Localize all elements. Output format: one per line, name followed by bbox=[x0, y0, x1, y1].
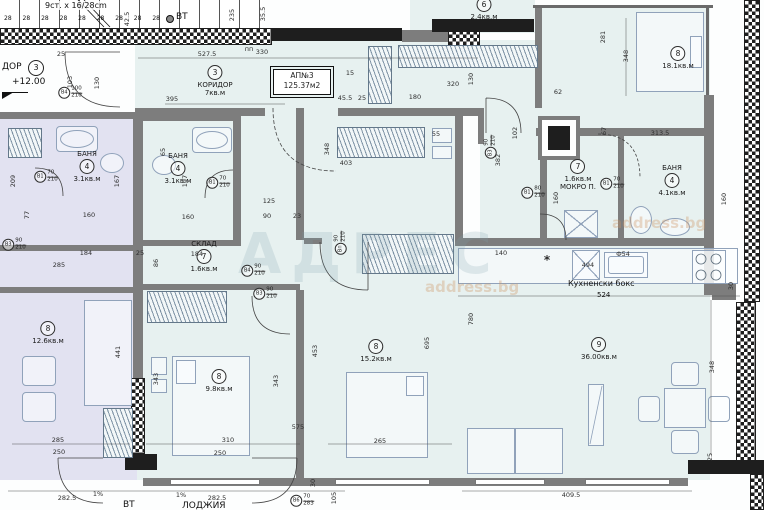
room-label: БАНЯ43.1кв.м bbox=[74, 150, 101, 183]
door-marker-size: 80210 bbox=[534, 187, 545, 200]
dimension-label: 77 bbox=[24, 211, 31, 219]
dimension-label: 130 bbox=[468, 73, 475, 85]
dimension-label: 348 bbox=[324, 143, 331, 155]
door-marker-code: В3 bbox=[485, 147, 497, 159]
dimension-label: 282.5 bbox=[208, 495, 227, 502]
dimension-label: 25 bbox=[57, 51, 65, 58]
room-label: 3КОРИДОР7кв.м bbox=[197, 64, 232, 97]
dimension-label: 527.5 bbox=[198, 51, 217, 58]
door-marker-size: 100210 bbox=[71, 87, 82, 100]
door-marker-code: В1 bbox=[206, 177, 218, 189]
landing-number: 3 bbox=[28, 60, 44, 76]
dimension-label: 281 bbox=[600, 31, 607, 43]
door-marker: В170210 bbox=[600, 178, 624, 191]
room-area: 12.6кв.м bbox=[32, 337, 63, 345]
room-area: 3.1кв.м bbox=[74, 175, 101, 183]
dimension-label: 494 bbox=[582, 262, 594, 269]
room-area: 9.8кв.м bbox=[206, 385, 233, 393]
dimension-label: 160 bbox=[182, 214, 194, 221]
dimension-label: 282.5 bbox=[58, 495, 77, 502]
room-number: 6 bbox=[477, 0, 492, 12]
door-marker-size: 90210 bbox=[335, 231, 348, 242]
dimension-label: 102 bbox=[512, 127, 519, 139]
landing-label: ДОР bbox=[2, 62, 22, 72]
door-marker: В4100210 bbox=[58, 87, 82, 100]
room-label: 936.00кв.м bbox=[581, 336, 617, 361]
door-marker-code: В1 bbox=[600, 178, 612, 190]
dimension-label: 348 bbox=[623, 50, 630, 62]
stair-note: 9ст. x 16/28cm bbox=[45, 1, 107, 10]
room-area: 1.6кв.м bbox=[191, 265, 218, 273]
door-marker-code: В3 bbox=[253, 288, 265, 300]
dimension-label: 184 bbox=[80, 250, 92, 257]
room-area: 7кв.м bbox=[197, 89, 232, 97]
room-number: 4 bbox=[665, 173, 680, 188]
room-area: 15.2кв.м bbox=[360, 355, 391, 363]
dimension-label: 780 bbox=[468, 313, 475, 325]
door-marker: В490210 bbox=[241, 265, 265, 278]
room-label: 89.8кв.м bbox=[206, 368, 233, 393]
dimension-label: 310 bbox=[222, 437, 234, 444]
stair-tread-numbers: 28 28 28 28 28 28 28 28 28 bbox=[4, 15, 239, 22]
watermark-url-2: address.bg bbox=[612, 214, 706, 232]
room-area: 1.6кв.м bbox=[560, 175, 596, 183]
door-marker-code: В4 bbox=[241, 265, 253, 277]
dimension-label: 197 bbox=[182, 175, 189, 187]
dimension-label: 160 bbox=[553, 192, 560, 204]
door-marker-code: В1 bbox=[521, 187, 533, 199]
door-marker-code: В4 bbox=[58, 87, 70, 99]
dimension-label: 65 bbox=[160, 148, 167, 156]
dimension-label: 45.5 bbox=[338, 95, 352, 102]
dimension-label: 25 bbox=[707, 453, 714, 461]
dimension-label: 313.5 bbox=[651, 130, 670, 137]
door-marker: В670283 bbox=[290, 495, 314, 508]
room-name: МОКРО П. bbox=[560, 183, 596, 191]
door-marker-size: 70210 bbox=[613, 178, 624, 191]
door-marker-size: 90210 bbox=[485, 135, 498, 146]
dimension-label: 30 bbox=[728, 282, 735, 290]
dimension-label: 105 bbox=[331, 492, 338, 504]
room-number: 9 bbox=[592, 337, 607, 352]
room-label: 62.4кв.м bbox=[471, 0, 498, 21]
door-marker-size: 90210 bbox=[254, 265, 265, 278]
apartment-label-box: АП№3 125.37м2 bbox=[273, 69, 331, 95]
apartment-area: 125.37м2 bbox=[274, 81, 330, 91]
dimension-label: 23 bbox=[293, 213, 301, 220]
room-number: 8 bbox=[368, 339, 383, 354]
room-number: 3 bbox=[207, 65, 222, 80]
dimension-label: 250 bbox=[53, 449, 65, 456]
dimension-label: 184 bbox=[191, 251, 203, 258]
dimension-label: 25 bbox=[136, 250, 144, 257]
door-marker: В390210 bbox=[253, 288, 277, 301]
dimension-label: 86 bbox=[153, 259, 160, 267]
dimension-label: 320 bbox=[447, 81, 459, 88]
dimension-label: 403 bbox=[340, 160, 352, 167]
room-name: КОРИДОР bbox=[197, 81, 232, 89]
dimension-label: 160 bbox=[721, 193, 728, 205]
watermark-url-1: address.bg bbox=[425, 278, 519, 296]
dimension-label: 343 bbox=[273, 375, 280, 387]
dimension-label: 25 bbox=[358, 95, 366, 102]
dimension-label: 330 bbox=[256, 49, 268, 56]
room-label: 812.6кв.м bbox=[32, 320, 63, 345]
dimension-label: 348 bbox=[709, 361, 716, 373]
room-number: 4 bbox=[80, 159, 95, 174]
dimension-label: 343 bbox=[153, 373, 160, 385]
level-label: +12.00 bbox=[12, 77, 45, 87]
room-number: 8 bbox=[212, 369, 227, 384]
loggia-label: ЛОДЖИЯ bbox=[182, 501, 226, 510]
dimension-label: 1% bbox=[176, 492, 186, 499]
dimension-label: 575 bbox=[292, 424, 304, 431]
room-area: 18.1кв.м bbox=[662, 62, 693, 70]
dimension-label: 15 bbox=[346, 70, 354, 77]
dimension-label: 62 bbox=[554, 89, 562, 96]
room-number: 8 bbox=[40, 321, 55, 336]
door-marker: В390210 bbox=[485, 135, 498, 159]
dimension-label: 395 bbox=[166, 96, 178, 103]
door-marker-code: В6 bbox=[290, 495, 302, 507]
door-marker-size: 70283 bbox=[303, 495, 314, 508]
dimension-label: 285 bbox=[52, 437, 64, 444]
dimension-label: пп bbox=[245, 46, 254, 53]
door-marker-code: Вп bbox=[335, 243, 347, 255]
dimension-label: * bbox=[544, 254, 550, 266]
room-area: 2.4кв.м bbox=[471, 13, 498, 21]
dimension-label: 42.5 bbox=[124, 12, 131, 26]
dimension-label: 235 bbox=[229, 9, 236, 21]
room-number: 8 bbox=[670, 46, 685, 61]
door-marker-code: В1 bbox=[34, 171, 46, 183]
room-label: 71.6кв.мМОКРО П. bbox=[560, 158, 596, 191]
dimension-label: 35.5 bbox=[260, 7, 267, 21]
door-marker-code: В3 bbox=[2, 239, 14, 251]
dimension-label: 265 bbox=[374, 438, 386, 445]
apartment-number: АП№3 bbox=[274, 71, 330, 81]
room-area: 4.1кв.м bbox=[659, 189, 686, 197]
dimension-label: 30 bbox=[310, 479, 317, 487]
dimension-label: 125 bbox=[263, 198, 275, 205]
dimension-label: 67 bbox=[601, 127, 608, 135]
dimension-label: 180 bbox=[409, 94, 421, 101]
door-marker-size: 70210 bbox=[219, 177, 230, 190]
door-marker-size: 70210 bbox=[47, 171, 58, 184]
dimension-label: 1% bbox=[93, 491, 103, 498]
room-name: СКЛАД bbox=[191, 240, 218, 248]
room-name: БАНЯ bbox=[659, 164, 686, 172]
door-marker: В180210 bbox=[521, 187, 545, 200]
dimension-label: 453 bbox=[312, 345, 319, 357]
room-label: 815.2кв.м bbox=[360, 338, 391, 363]
door-marker-size: 90210 bbox=[266, 288, 277, 301]
room-label: 818.1кв.м bbox=[662, 45, 693, 70]
dimension-label: 167 bbox=[114, 175, 121, 187]
floor-plan-canvas: 28 28 28 28 28 28 28 28 28 9ст. x 16/28c… bbox=[0, 0, 764, 510]
kitchen-dim: 524 bbox=[597, 291, 610, 299]
dimension-label: 130 bbox=[94, 77, 101, 89]
dimension-label: 90 bbox=[263, 213, 271, 220]
door-marker-size: 90210 bbox=[15, 239, 26, 252]
dimension-label: 441 bbox=[115, 346, 122, 358]
kitchen-label: Кухненски бокс bbox=[568, 279, 635, 288]
dimension-label: 160 bbox=[83, 212, 95, 219]
dimension-label: 140 bbox=[495, 250, 507, 257]
door-marker: В170210 bbox=[34, 171, 58, 184]
door-marker: В390210 bbox=[2, 239, 26, 252]
dimension-label: 285 bbox=[53, 262, 65, 269]
room-area: 36.00кв.м bbox=[581, 353, 617, 361]
room-name: БАНЯ bbox=[165, 152, 192, 160]
vt-label-bottom: ВТ bbox=[123, 500, 135, 510]
door-marker: Вп90210 bbox=[335, 231, 348, 255]
dimension-label: 55 bbox=[432, 131, 440, 138]
dimension-label: 695 bbox=[424, 337, 431, 349]
room-label: БАНЯ44.1кв.м bbox=[659, 164, 686, 197]
dimension-label: Ф54 bbox=[616, 251, 630, 258]
room-name: БАНЯ bbox=[74, 150, 101, 158]
dimension-label: 250 bbox=[214, 450, 226, 457]
dimension-label: 209 bbox=[10, 175, 17, 187]
vt-label-top: ВТ bbox=[176, 12, 188, 22]
room-number: 7 bbox=[571, 159, 586, 174]
dimension-label: 409.5 bbox=[562, 492, 581, 499]
door-marker: В170210 bbox=[206, 177, 230, 190]
